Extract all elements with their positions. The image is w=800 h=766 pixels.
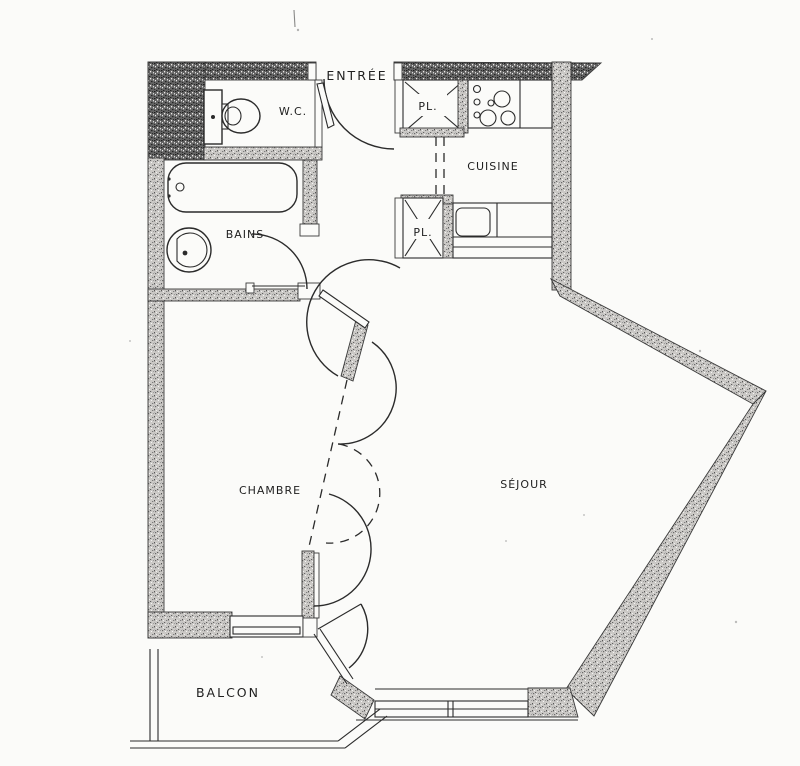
room-label-placard-haut: PL. [418, 100, 437, 113]
wall-left [148, 158, 164, 638]
wall-chambre-bottom [148, 612, 232, 638]
hob-fixture [468, 80, 552, 128]
wall-wc-bottom [204, 147, 322, 160]
wall-jamb-entrance-right [394, 63, 402, 80]
wall-corner-block [148, 62, 205, 160]
wall-partition-liner [314, 553, 319, 618]
wall-jamb-bains-door [246, 283, 254, 293]
sink-unit [453, 203, 552, 258]
room-label-placard-bas: PL. [413, 226, 432, 239]
room-label-balcon: BALCON [196, 685, 260, 700]
room-label-entree: ENTRÉE [326, 68, 387, 83]
floor-plan: ENTRÉE W.C. PL. CUISINE PL. BAINS CHAMBR… [0, 0, 800, 766]
wall-bains-bottom [148, 289, 300, 301]
wall-right [552, 62, 571, 290]
room-label-cuisine: CUISINE [467, 160, 518, 173]
wall-jamb-hall [298, 283, 320, 299]
room-label-bains: BAINS [226, 228, 265, 241]
wall-pier-right [528, 688, 578, 717]
room-label-wc: W.C. [279, 105, 307, 118]
wall-bains-right [303, 160, 317, 224]
wall-jamb-bains [300, 224, 319, 236]
room-label-sejour: SÉJOUR [500, 478, 548, 491]
wall-jamb-entrance-left [308, 63, 316, 80]
chambre-window [230, 616, 317, 637]
room-label-chambre: CHAMBRE [239, 484, 301, 497]
